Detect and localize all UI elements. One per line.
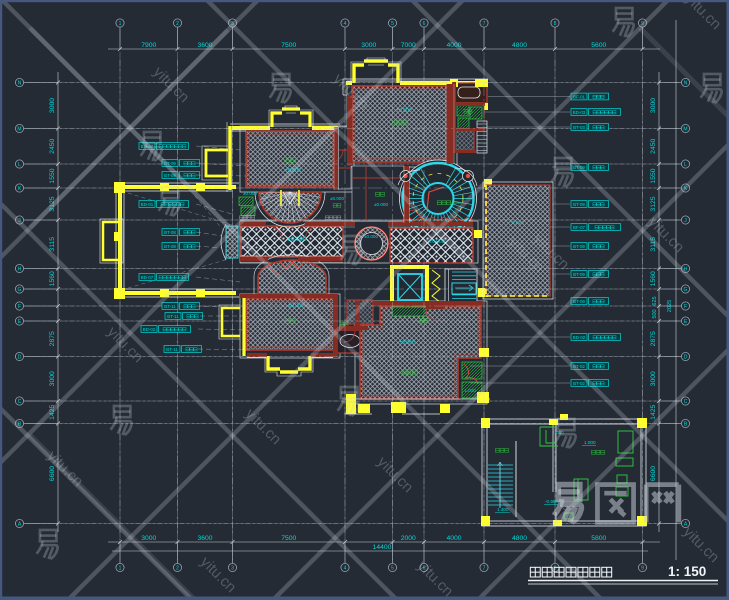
svg-text:7500: 7500	[281, 535, 296, 542]
svg-text:C: C	[684, 399, 688, 405]
svg-text:3125: 3125	[650, 196, 657, 211]
svg-text:BT-09: BT-09	[573, 272, 585, 277]
svg-text:14400: 14400	[373, 544, 392, 551]
svg-text:BF-07: BF-07	[573, 225, 586, 230]
svg-text:625: 625	[652, 296, 658, 305]
svg-text:1.000: 1.000	[464, 388, 476, 393]
svg-text:1560: 1560	[49, 271, 56, 286]
svg-text:1560: 1560	[650, 271, 657, 286]
svg-text:BT-09: BT-09	[573, 244, 585, 249]
svg-text:4: 4	[344, 21, 347, 27]
svg-text:5800: 5800	[591, 535, 606, 542]
svg-text:6: 6	[423, 21, 426, 27]
svg-text:3000: 3000	[49, 371, 56, 386]
svg-text:±0.000: ±0.000	[364, 234, 378, 239]
svg-text:BD-01: BD-01	[141, 202, 154, 207]
svg-text:±0.000: ±0.000	[396, 108, 411, 114]
svg-text:3000: 3000	[49, 98, 56, 113]
svg-text:2450: 2450	[650, 138, 657, 153]
svg-text:BD-07: BD-07	[141, 275, 154, 280]
svg-text:BT-03: BT-03	[573, 125, 585, 130]
svg-text:L: L	[18, 162, 21, 168]
svg-text:2000: 2000	[401, 535, 416, 542]
svg-text:BD-03: BD-03	[573, 110, 586, 115]
svg-text:±0.000: ±0.000	[429, 239, 444, 245]
svg-text:BD-02: BD-02	[573, 335, 586, 340]
svg-text:M: M	[683, 127, 687, 133]
svg-text:1: 150: 1: 150	[668, 564, 706, 579]
svg-text:4: 4	[344, 566, 347, 572]
svg-text:3000: 3000	[650, 371, 657, 386]
svg-text:L: L	[684, 162, 687, 168]
svg-text:2: 2	[176, 21, 179, 27]
svg-text:7900: 7900	[141, 42, 156, 49]
svg-text:M: M	[17, 127, 21, 133]
svg-text:500: 500	[652, 309, 658, 318]
svg-text:2025: 2025	[667, 300, 673, 312]
svg-text:-0.020: -0.020	[510, 220, 524, 226]
svg-text:H: H	[18, 267, 22, 273]
svg-text:1550: 1550	[49, 168, 56, 183]
svg-text:BT-08: BT-08	[164, 230, 176, 235]
svg-text:8: 8	[554, 21, 557, 27]
svg-text:BT-11: BT-11	[167, 314, 179, 319]
svg-text:C: C	[18, 399, 22, 405]
svg-text:1425: 1425	[650, 404, 657, 419]
svg-text:D: D	[684, 355, 688, 361]
svg-text:F: F	[684, 304, 687, 310]
svg-text:3000: 3000	[361, 42, 376, 49]
svg-text:BT-11: BT-11	[166, 347, 178, 352]
svg-text:6600: 6600	[650, 466, 657, 481]
svg-text:1.000: 1.000	[584, 440, 596, 445]
svg-text:1: 1	[119, 566, 122, 572]
svg-text:N: N	[684, 81, 688, 87]
svg-text:2: 2	[176, 566, 179, 572]
svg-text:3115: 3115	[49, 237, 56, 252]
svg-text:±0.000: ±0.000	[399, 340, 414, 346]
svg-text:±0.000: ±0.000	[330, 196, 344, 201]
svg-text:1: 1	[119, 21, 122, 27]
svg-text:N: N	[18, 81, 22, 87]
svg-text:BT-09: BT-09	[573, 202, 585, 207]
svg-text:5600: 5600	[591, 42, 606, 49]
svg-text:4800: 4800	[512, 535, 527, 542]
svg-text:F: F	[18, 304, 21, 310]
svg-text:4000: 4000	[446, 535, 461, 542]
svg-text:±0.000: ±0.000	[243, 191, 257, 196]
svg-text:3600: 3600	[197, 535, 212, 542]
svg-text:BT-11: BT-11	[164, 304, 176, 309]
svg-text:G: G	[18, 287, 22, 293]
svg-text:3000: 3000	[650, 98, 657, 113]
svg-text:3000: 3000	[141, 535, 156, 542]
svg-text:BT-02: BT-02	[573, 381, 585, 386]
svg-text:9: 9	[641, 566, 644, 572]
svg-text:7: 7	[483, 21, 486, 27]
svg-text:1550: 1550	[650, 168, 657, 183]
svg-text:3: 3	[231, 566, 234, 572]
svg-text:7: 7	[483, 566, 486, 572]
svg-text:±0.000: ±0.000	[288, 236, 307, 243]
svg-text:2875: 2875	[49, 331, 56, 346]
svg-text:G: G	[684, 287, 688, 293]
svg-text:BD-02: BD-02	[143, 327, 156, 332]
svg-text:4800: 4800	[512, 42, 527, 49]
svg-text:2875: 2875	[650, 331, 657, 346]
svg-text:7500: 7500	[281, 42, 296, 49]
svg-text:D: D	[18, 355, 22, 361]
svg-text:±0.000: ±0.000	[374, 202, 388, 207]
svg-text:2450: 2450	[49, 138, 56, 153]
svg-text:5: 5	[391, 566, 394, 572]
svg-text:BT-08: BT-08	[164, 244, 176, 249]
svg-text:5: 5	[391, 21, 394, 27]
